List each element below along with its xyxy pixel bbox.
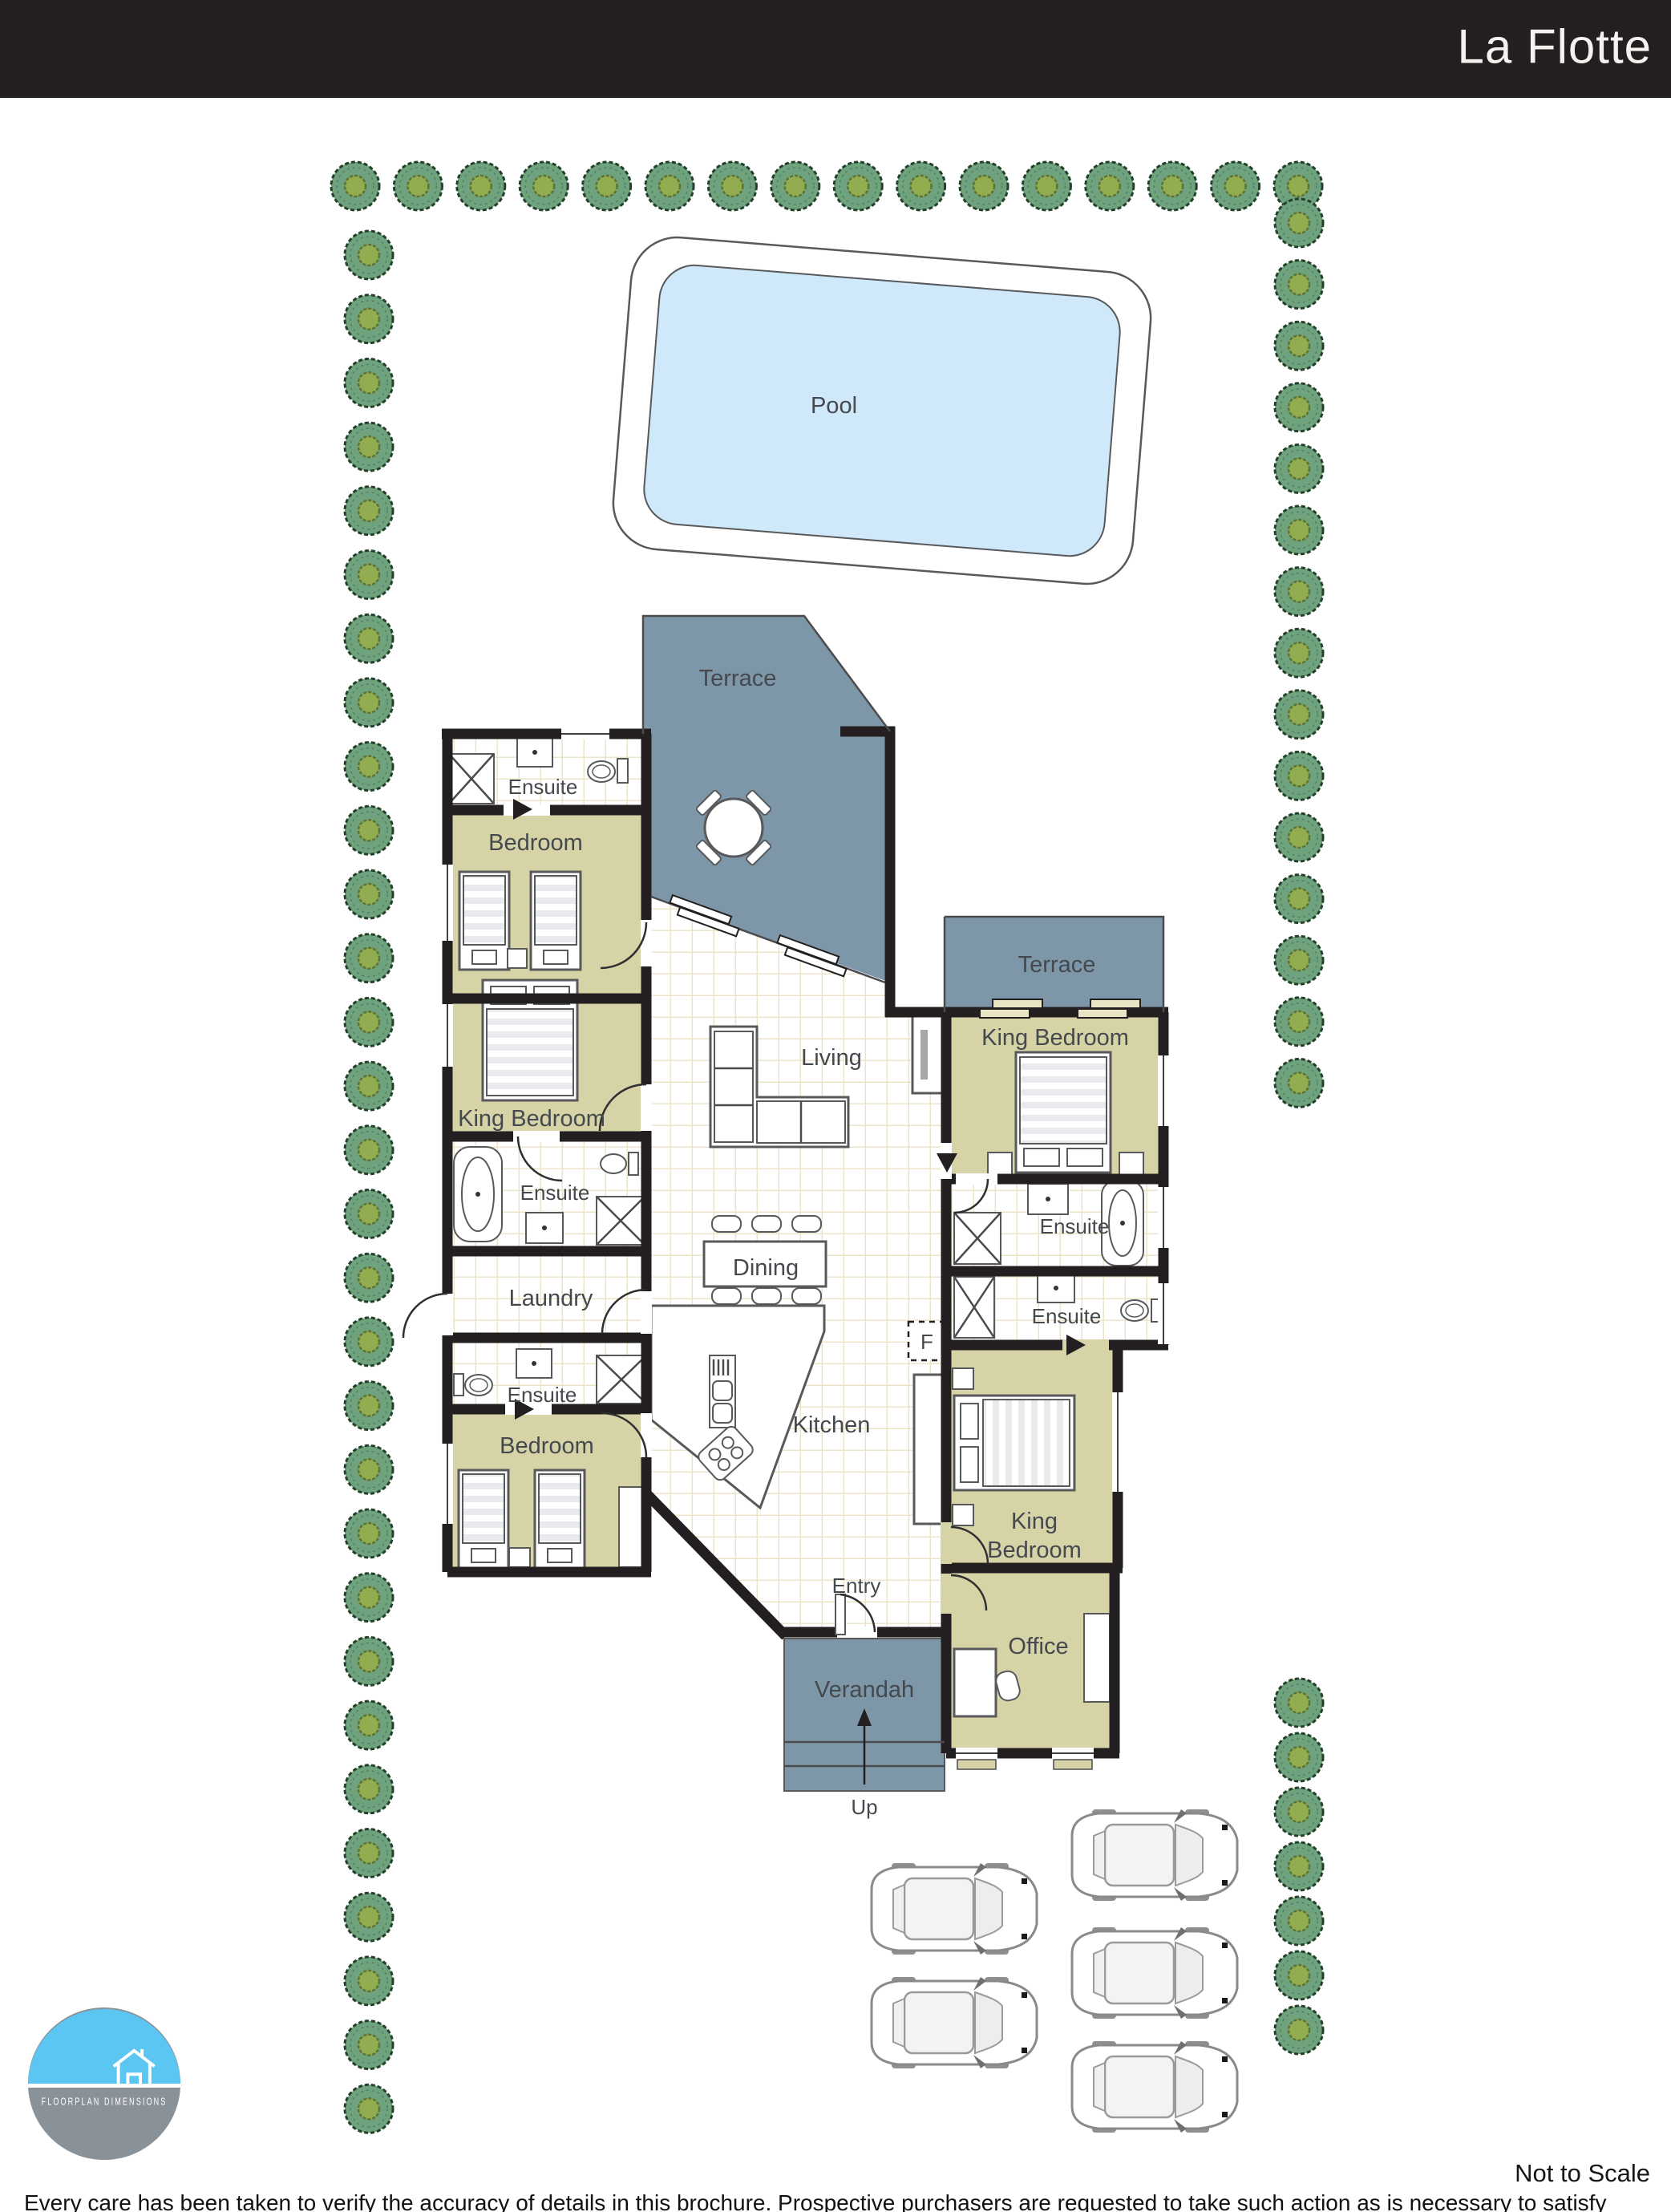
tree-icon bbox=[1275, 629, 1323, 677]
tree-icon bbox=[1275, 2006, 1323, 2054]
tree-icon bbox=[1275, 1897, 1323, 1945]
laundry-label: Laundry bbox=[509, 1286, 593, 1311]
terrace-dining-set bbox=[696, 790, 772, 866]
bedroom-lower-label: Bedroom bbox=[500, 1433, 594, 1459]
disclaimer-text: Every care has been taken to verify the … bbox=[24, 2190, 1652, 2212]
tree-icon bbox=[345, 1509, 393, 1558]
tree-icon bbox=[345, 1957, 393, 2005]
tree-icon bbox=[1275, 998, 1323, 1046]
car-icon bbox=[1072, 1809, 1237, 1901]
tree-icon bbox=[345, 1445, 393, 1493]
tree-icon bbox=[1275, 506, 1323, 554]
tree-icon bbox=[345, 1829, 393, 1878]
kitchen-label: Kitchen bbox=[793, 1412, 871, 1438]
tree-icon bbox=[1275, 1842, 1323, 1890]
tree-icon bbox=[345, 679, 393, 727]
tree-icon bbox=[345, 870, 393, 918]
tree-icon bbox=[345, 806, 393, 854]
tree-icon bbox=[1275, 1733, 1323, 1781]
tree-icon bbox=[1275, 936, 1323, 984]
brochure-page: La Flotte bbox=[0, 0, 1671, 2212]
king-bedroom-left-label: King Bedroom bbox=[458, 1106, 605, 1132]
tree-icon bbox=[345, 1701, 393, 1749]
ensuite-right-lower-label: Ensuite bbox=[1032, 1304, 1102, 1328]
tree-icon bbox=[345, 359, 393, 407]
tree-icon bbox=[645, 162, 694, 210]
tree-icon bbox=[345, 1190, 393, 1238]
tree-icon bbox=[345, 487, 393, 535]
dining-label: Dining bbox=[733, 1255, 799, 1281]
tree-icon bbox=[834, 162, 882, 210]
tree-icon bbox=[1275, 1951, 1323, 1999]
tree-icon bbox=[1275, 1788, 1323, 1836]
tree-icon bbox=[345, 2084, 393, 2133]
tree-icon bbox=[1275, 752, 1323, 800]
tree-icon bbox=[345, 743, 393, 791]
office-label: Office bbox=[1008, 1634, 1068, 1659]
tree-icon bbox=[1148, 162, 1196, 210]
fridge-label: F bbox=[920, 1330, 933, 1354]
tree-icon bbox=[345, 1318, 393, 1366]
tree-icon bbox=[345, 1637, 393, 1685]
tree-icon bbox=[345, 1254, 393, 1302]
car-icon bbox=[872, 1977, 1037, 2068]
up-label: Up bbox=[851, 1795, 877, 1819]
parked-cars bbox=[872, 1809, 1237, 2133]
tree-icon bbox=[520, 162, 568, 210]
tree-icon bbox=[960, 162, 1008, 210]
tree-icon bbox=[345, 423, 393, 471]
tree-icon bbox=[457, 162, 505, 210]
ensuite-right-upper-label: Ensuite bbox=[1040, 1214, 1110, 1238]
tree-icon bbox=[1275, 383, 1323, 431]
tree-icon bbox=[345, 1126, 393, 1174]
king-bedroom-right-label: King Bedroom bbox=[981, 1025, 1129, 1051]
tree-icon bbox=[345, 934, 393, 982]
verandah-label: Verandah bbox=[815, 1677, 914, 1703]
car-icon bbox=[872, 1863, 1037, 1955]
tree-icon bbox=[345, 614, 393, 662]
floorplan-dimensions-logo: FLOORPLAN DIMENSIONS bbox=[26, 2005, 183, 2162]
tree-icon bbox=[345, 1382, 393, 1430]
tree-icon bbox=[345, 1062, 393, 1110]
tree-icon bbox=[1275, 1679, 1323, 1727]
tree-icon bbox=[771, 162, 819, 210]
terrace-top-label: Terrace bbox=[699, 666, 777, 691]
car-icon bbox=[1072, 2041, 1237, 2133]
tree-icon bbox=[345, 295, 393, 343]
pool: Pool bbox=[609, 234, 1154, 588]
tree-icon bbox=[1275, 875, 1323, 923]
tree-icon bbox=[1086, 162, 1134, 210]
tree-icon bbox=[1275, 444, 1323, 492]
king-bedroom-bottom-label-2: Bedroom bbox=[987, 1537, 1082, 1563]
terrace-right-label: Terrace bbox=[1018, 952, 1096, 978]
tree-icon bbox=[345, 231, 393, 279]
tree-icon bbox=[897, 162, 945, 210]
tree-icon bbox=[1275, 568, 1323, 616]
floorplan-canvas: Pool bbox=[0, 0, 1671, 2212]
logo-brand-text: FLOORPLAN DIMENSIONS bbox=[42, 2095, 168, 2107]
ensuite-lower-label: Ensuite bbox=[508, 1383, 577, 1407]
pool-label: Pool bbox=[811, 393, 857, 419]
tree-icon bbox=[345, 1893, 393, 1941]
tree-icon bbox=[1022, 162, 1070, 210]
tree-icon bbox=[1275, 199, 1323, 247]
tree-icon bbox=[1275, 691, 1323, 739]
king-bedroom-bottom-label-1: King bbox=[1011, 1509, 1058, 1534]
living-label: Living bbox=[801, 1045, 862, 1071]
tree-icon bbox=[1275, 1059, 1323, 1107]
ensuite-top-label: Ensuite bbox=[508, 775, 578, 799]
tree-icon bbox=[345, 2021, 393, 2069]
tree-icon bbox=[345, 998, 393, 1046]
tree-icon bbox=[708, 162, 756, 210]
car-icon bbox=[1072, 1927, 1237, 2019]
tree-icon bbox=[331, 162, 379, 210]
tree-icon bbox=[1275, 322, 1323, 370]
tree-icon bbox=[394, 162, 442, 210]
tree-icon bbox=[345, 551, 393, 599]
tree-icon bbox=[1275, 261, 1323, 309]
tree-icon bbox=[345, 1765, 393, 1813]
entry-label: Entry bbox=[832, 1574, 881, 1598]
bedroom-top-label: Bedroom bbox=[488, 830, 583, 856]
not-to-scale-note: Not to Scale bbox=[1515, 2159, 1650, 2188]
tree-icon bbox=[1212, 162, 1260, 210]
tree-icon bbox=[583, 162, 631, 210]
tree-icon bbox=[1275, 813, 1323, 861]
tree-icon bbox=[345, 1574, 393, 1622]
ensuite-left-label: Ensuite bbox=[520, 1181, 590, 1205]
